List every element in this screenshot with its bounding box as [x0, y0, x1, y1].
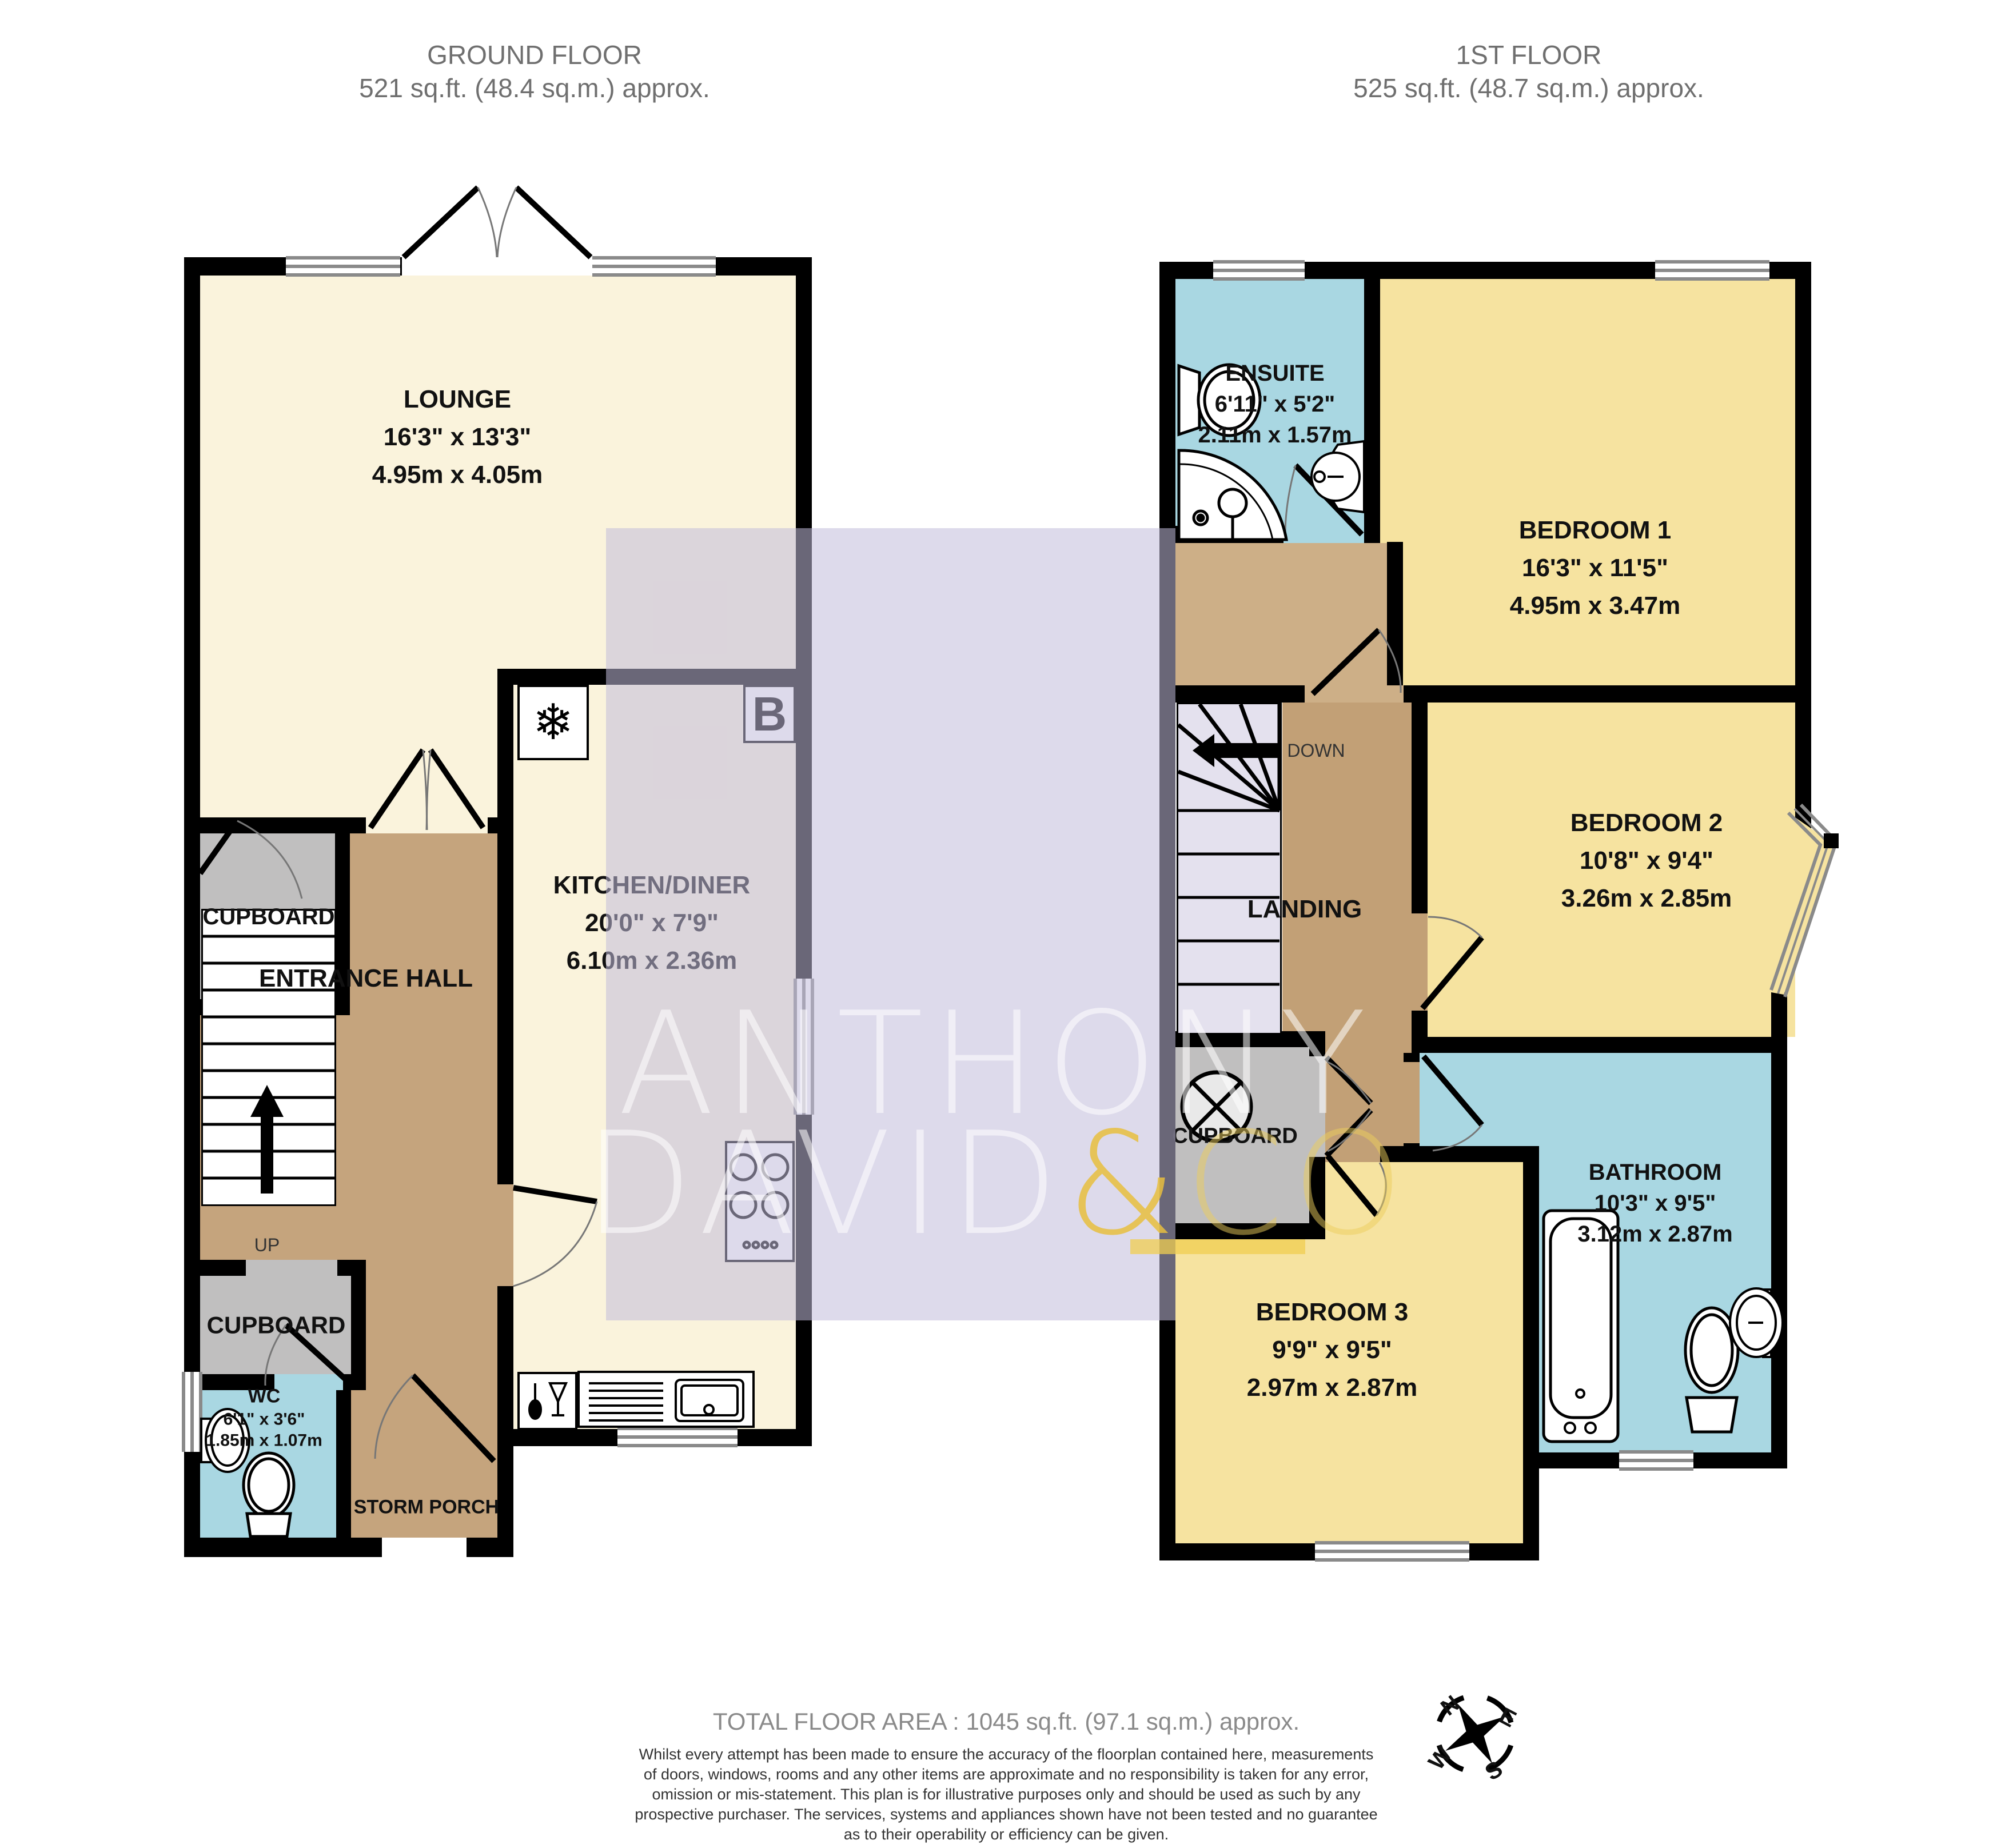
window: [1315, 1541, 1469, 1562]
window: [617, 1427, 738, 1447]
credit-line: Made with Metropix ©2025: [635, 1845, 1377, 1848]
wall: [1412, 1037, 1787, 1053]
first-floor-area: 525 sq.ft. (48.7 sq.m.) approx.: [1353, 73, 1704, 103]
wall: [184, 257, 200, 1557]
up-label: UP: [254, 1231, 280, 1259]
wall: [1387, 542, 1403, 703]
wall: [184, 1538, 351, 1557]
window: [182, 1372, 202, 1452]
wall: [1771, 992, 1787, 1468]
window: [592, 256, 716, 277]
ground-floor-header: GROUND FLOOR 521 sq.ft. (48.4 sq.m.) app…: [359, 39, 710, 105]
watermark-underline: [1130, 1239, 1305, 1254]
wc-label: WC 6'1" x 3'6" 1.85m x 1.07m: [206, 1384, 322, 1451]
wall: [1159, 685, 1305, 703]
wall: [467, 1538, 497, 1557]
wall: [1795, 262, 1811, 839]
wall: [497, 685, 513, 1184]
wall: [336, 1374, 351, 1557]
hall-label: ENTRANCE HALL: [259, 960, 473, 997]
disclaimer-line: as to their operability or efficiency ca…: [635, 1825, 1377, 1845]
ground-floor-area: 521 sq.ft. (48.4 sq.m.) approx.: [359, 73, 710, 103]
compass-n: N: [1433, 1687, 1468, 1724]
landing-floor: [1175, 543, 1387, 685]
disclaimer: Whilst every attempt has been made to en…: [635, 1745, 1377, 1848]
wall: [1404, 1053, 1420, 1062]
doorway: [366, 817, 488, 833]
ground-floor-title: GROUND FLOOR: [427, 40, 642, 70]
bedroom3-label: BEDROOM 3 9'9" x 9'5" 2.97m x 2.87m: [1247, 1294, 1417, 1407]
disclaimer-line: prospective purchaser. The services, sys…: [635, 1805, 1377, 1825]
doorway: [1305, 685, 1404, 703]
wall: [1523, 1146, 1539, 1560]
kitchen-appliance: [517, 1372, 577, 1430]
disclaimer-line: Whilst every attempt has been made to en…: [635, 1745, 1377, 1765]
doorway: [1283, 526, 1364, 543]
stairs-ground: [201, 909, 336, 1206]
landing-label: LANDING: [1247, 891, 1362, 928]
window: [1619, 1450, 1693, 1471]
first-floor-title: 1ST FLOOR: [1456, 40, 1602, 70]
snowflake-icon: ❄: [532, 695, 573, 750]
total-floor-area: TOTAL FLOOR AREA : 1045 sq.ft. (97.1 sq.…: [713, 1708, 1300, 1735]
compass-s: S: [1478, 1752, 1509, 1789]
wall: [497, 1286, 513, 1557]
doorway: [497, 1184, 513, 1286]
disclaimer-line: of doors, windows, rooms and any other i…: [635, 1765, 1377, 1785]
wall: [1412, 703, 1428, 917]
wall: [351, 1260, 366, 1390]
bathroom-label: BATHROOM 10'3" x 9'5" 3.12m x 2.87m: [1577, 1157, 1732, 1250]
wall: [1364, 262, 1380, 543]
bay-corner: [1824, 833, 1839, 848]
bedroom1-label: BEDROOM 1 16'3" x 11'5" 4.95m x 3.47m: [1510, 512, 1680, 625]
compass-e: E: [1493, 1699, 1522, 1737]
doorway: [1412, 913, 1428, 1011]
ensuite-label: ENSUITE 6'11" x 5'2" 2.11m x 1.57m: [1198, 358, 1352, 450]
window: [1213, 260, 1305, 281]
wall: [1159, 526, 1283, 543]
down-label: DOWN: [1287, 737, 1345, 764]
doorway: [246, 1260, 337, 1276]
first-floor-header: 1ST FLOOR 525 sq.ft. (48.7 sq.m.) approx…: [1353, 39, 1704, 105]
lounge-label: LOUNGE 16'3" x 13'3" 4.95m x 4.05m: [372, 381, 543, 494]
bedroom2-label: BEDROOM 2 10'8" x 9'4" 3.26m x 2.85m: [1561, 804, 1732, 917]
lounge-floor: [200, 669, 497, 833]
window: [1655, 260, 1769, 281]
freezer: ❄: [517, 685, 589, 760]
cupboard-upper-label: CUPBOARD: [202, 900, 334, 934]
porch-label: STORM PORCH: [354, 1493, 499, 1522]
disclaimer-line: omission or mis-statement. This plan is …: [635, 1785, 1377, 1805]
wall: [1404, 685, 1811, 703]
wall: [351, 1538, 382, 1557]
cupboard-lower-label: CUPBOARD: [207, 1307, 346, 1343]
compass-w: W: [1420, 1739, 1461, 1778]
floorplan-page: GROUND FLOOR 521 sq.ft. (48.4 sq.m.) app…: [0, 0, 2005, 1848]
window: [286, 256, 400, 277]
kitchen-sink-unit: [577, 1371, 755, 1428]
